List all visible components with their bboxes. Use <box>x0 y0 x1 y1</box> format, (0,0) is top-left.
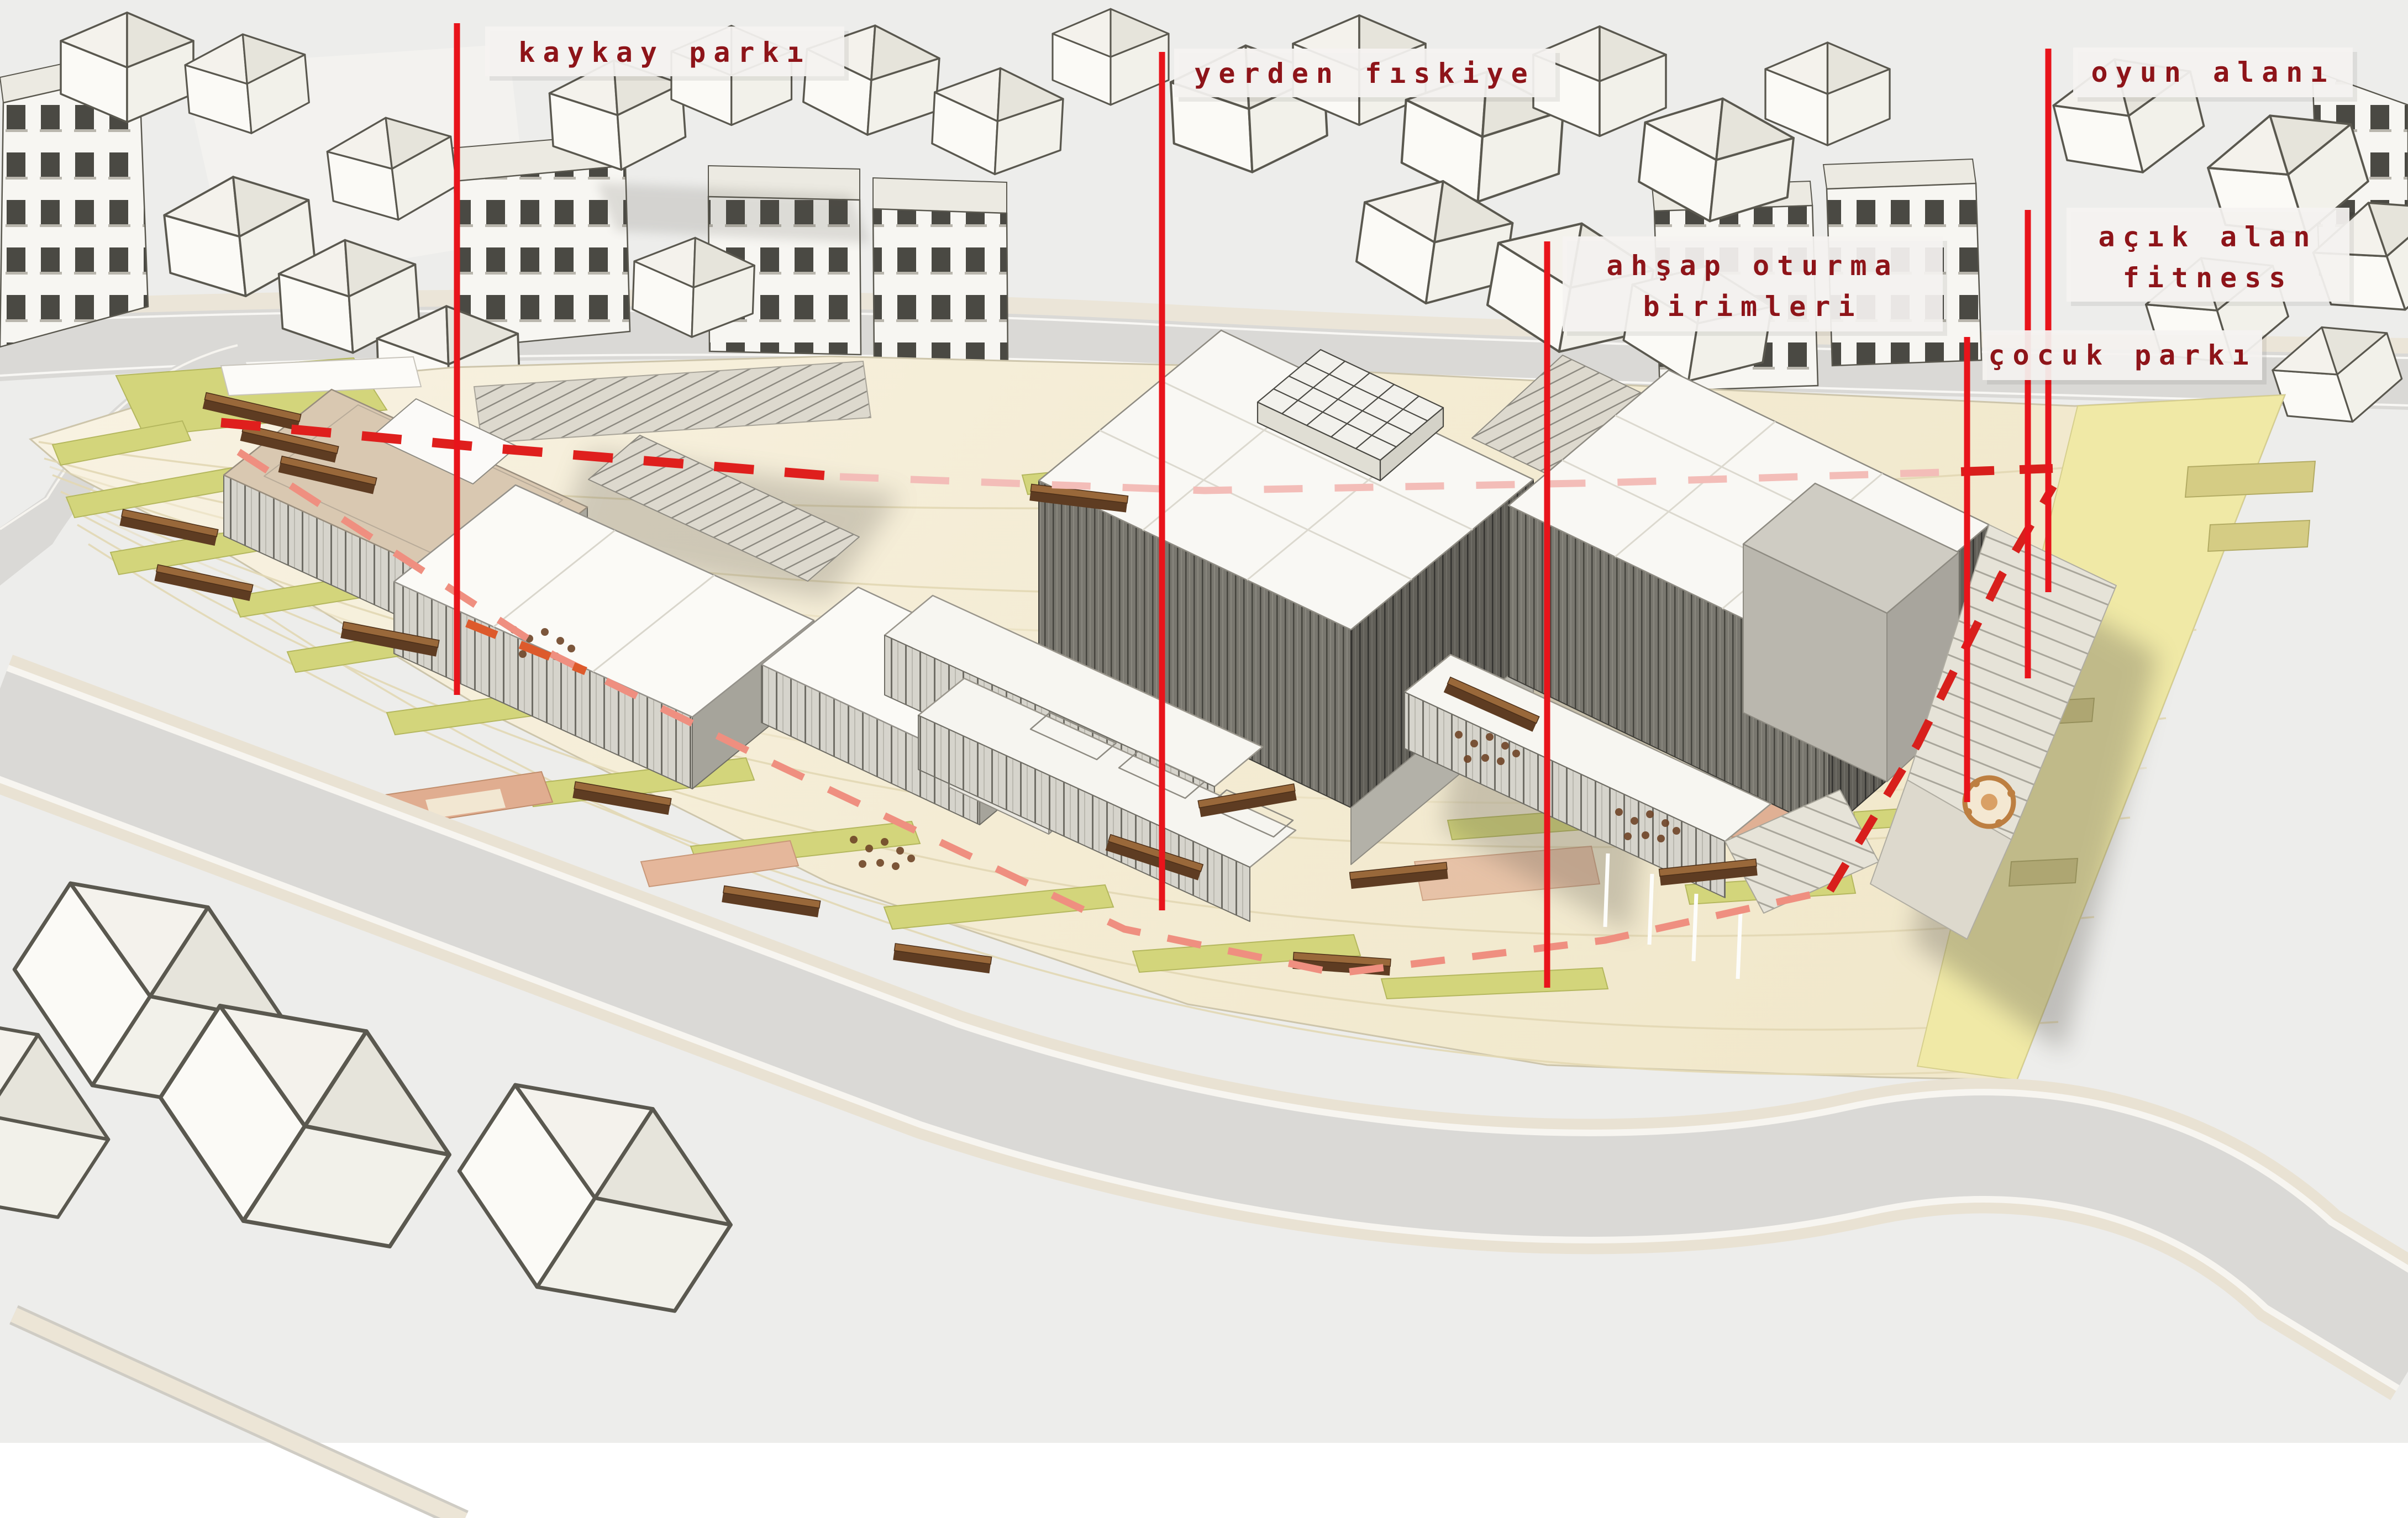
label-kaykay-parki: kaykay parkı <box>518 36 811 68</box>
architectural-site-rendering: kaykay parkı yerden fıskiye ahşap oturma… <box>0 0 2408 1518</box>
label-oyun-alani: oyun alanı <box>2091 56 2335 88</box>
carousel <box>1964 778 2015 827</box>
annotation-kaykay-parki: kaykay parkı <box>485 27 849 81</box>
label-cocuk-parki: çocuk parkı <box>1988 339 2256 371</box>
label-yerden-fiskiye: yerden fıskiye <box>1194 57 1535 89</box>
label-ahsap-oturma-line2: birimleri <box>1643 291 1863 323</box>
label-ahsap-oturma-line1: ahşap oturma <box>1606 250 1899 282</box>
annotation-ahsap-oturma-birimleri: ahşap oturma birimleri <box>1563 236 1947 336</box>
site-plan-canvas: kaykay parkı yerden fıskiye ahşap oturma… <box>0 0 2408 1518</box>
apartment-slab <box>452 134 630 348</box>
annotation-acik-alan-fitness: açık alan fitness <box>2067 208 2354 306</box>
label-fitness: fitness <box>2123 262 2294 294</box>
annotation-oyun-alani: oyun alanı <box>2073 48 2357 102</box>
label-acik-alan: açık alan <box>2099 221 2318 253</box>
apartment-slab <box>873 178 1008 365</box>
annotation-cocuk-parki: çocuk parkı <box>1983 330 2267 384</box>
annotation-yerden-fiskiye: yerden fıskiye <box>1174 49 1560 102</box>
